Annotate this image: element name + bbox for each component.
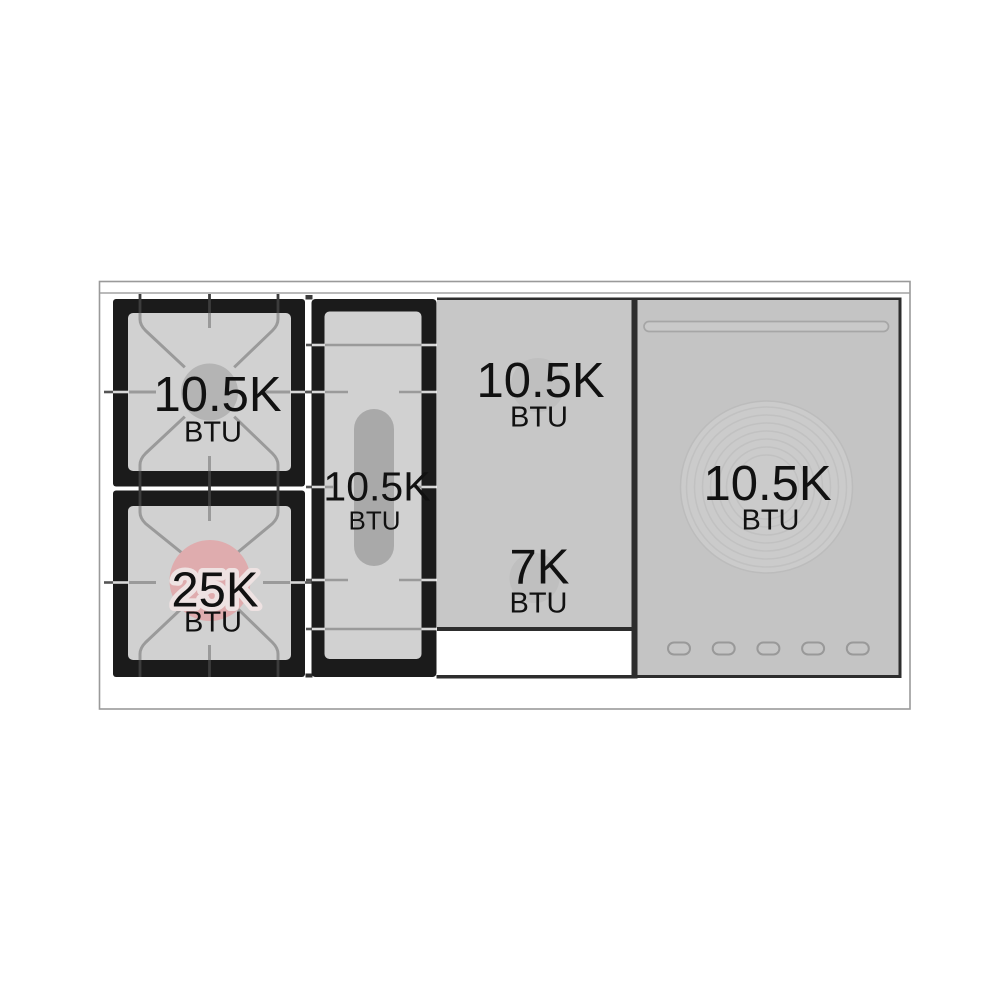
svg-text:10.5K: 10.5K (476, 354, 604, 408)
svg-text:10.5K: 10.5K (323, 464, 430, 510)
svg-text:BTU: BTU (349, 506, 401, 536)
svg-text:10.5K: 10.5K (153, 368, 281, 422)
svg-text:10.5K: 10.5K (703, 457, 831, 511)
svg-text:BTU: BTU (184, 607, 242, 639)
svg-text:BTU: BTU (742, 505, 800, 537)
svg-text:BTU: BTU (184, 417, 242, 449)
svg-text:BTU: BTU (510, 402, 568, 434)
svg-text:7K: 7K (510, 541, 570, 595)
svg-text:BTU: BTU (510, 588, 568, 620)
